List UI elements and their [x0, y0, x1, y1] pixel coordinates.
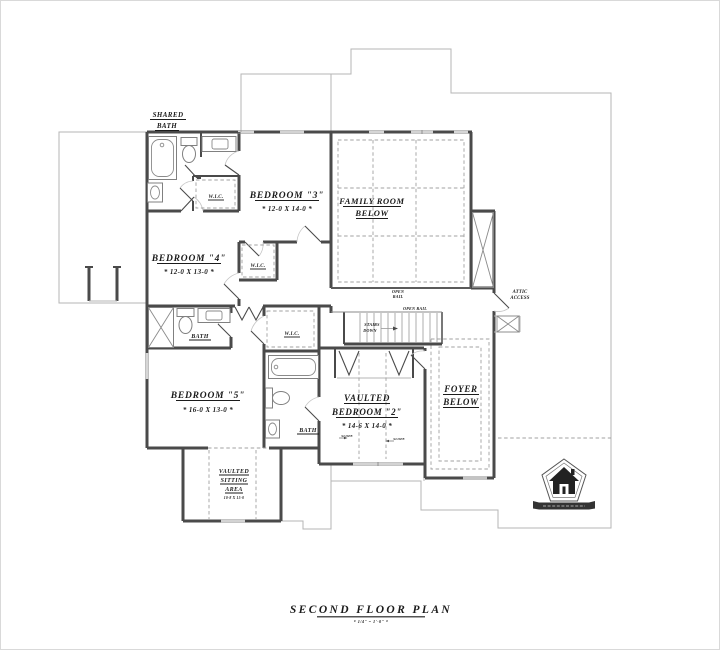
foyer-label: FOYER [443, 384, 478, 394]
sheet-title: SECOND FLOOR PLAN [290, 604, 452, 616]
family-room-label: BELOW [354, 208, 389, 218]
slope-note: SLOPE [341, 434, 353, 438]
bedroom2-label: VAULTED [344, 393, 390, 403]
attic-access-label: ACCESS [509, 296, 529, 301]
sink-icon [148, 183, 163, 202]
sitting-area-dims: 10-8 X 15-0 [224, 496, 245, 500]
bedroom5-dims: * 16-0 X 13-0 * [183, 406, 233, 414]
wic-label: W.I.C. [285, 332, 300, 337]
toilet-icon [177, 309, 194, 334]
stairs-label: DOWN [362, 328, 377, 333]
shared-bath-label: BATH [156, 122, 177, 130]
chimney [85, 267, 121, 301]
title-block: SECOND FLOOR PLAN * 1/4" = 1'-0" * [290, 604, 452, 624]
sink-icon [198, 309, 230, 323]
bath-label: BATH [298, 428, 317, 434]
walls [147, 132, 520, 521]
shared-bath-label: SHARED [153, 111, 184, 119]
bedroom5-label: BEDROOM "5" [170, 391, 246, 401]
sitting-area-label: SITTING [221, 478, 248, 484]
open-rail-label: OPEN RAIL [403, 306, 427, 311]
bath-label: BATH [190, 334, 209, 340]
windows [146, 130, 487, 522]
house-badge-logo [533, 459, 595, 510]
attic-hatch-x [497, 316, 519, 332]
sink-icon [266, 420, 280, 438]
attic-access-label: ATTIC [512, 290, 528, 295]
floor-plan-sheet: SHARED BATH BEDROOM "3" * 12-0 X 14-0 * … [0, 0, 720, 650]
open-rail-label: RAIL [393, 294, 404, 299]
bedroom2-label: BEDROOM "2" [331, 407, 402, 417]
toilet-icon [181, 138, 197, 163]
wic-label: W.I.C. [251, 264, 266, 269]
stairs-label: STAIRS [364, 322, 380, 327]
sink-icon [202, 137, 236, 152]
attic-closet-x [473, 213, 494, 288]
slope-note: SLOPE [393, 437, 405, 441]
wic-label: W.I.C. [209, 195, 224, 200]
family-room-label: FAMILY ROOM [338, 196, 404, 206]
shower-icon [149, 308, 174, 348]
bedroom3-label: BEDROOM "3" [249, 191, 325, 201]
toilet-icon [266, 388, 290, 408]
sitting-area-label: VAULTED [219, 469, 250, 475]
sitting-area-label: AREA [224, 487, 243, 493]
bathtub-icon [269, 356, 319, 379]
bedroom4-dims: * 12-0 X 13-0 * [164, 268, 214, 276]
foyer-label: BELOW [442, 397, 479, 407]
bedroom3-dims: * 12-0 X 14-0 * [262, 205, 312, 213]
bedroom2-dims: * 14-6 X 14-0 * [342, 422, 392, 430]
scale-note: * 1/4" = 1'-0" * [354, 619, 389, 624]
floor-plan-canvas: SHARED BATH BEDROOM "3" * 12-0 X 14-0 * … [1, 1, 719, 649]
bedroom4-label: BEDROOM "4" [151, 254, 227, 264]
bathtub-icon [149, 137, 177, 180]
